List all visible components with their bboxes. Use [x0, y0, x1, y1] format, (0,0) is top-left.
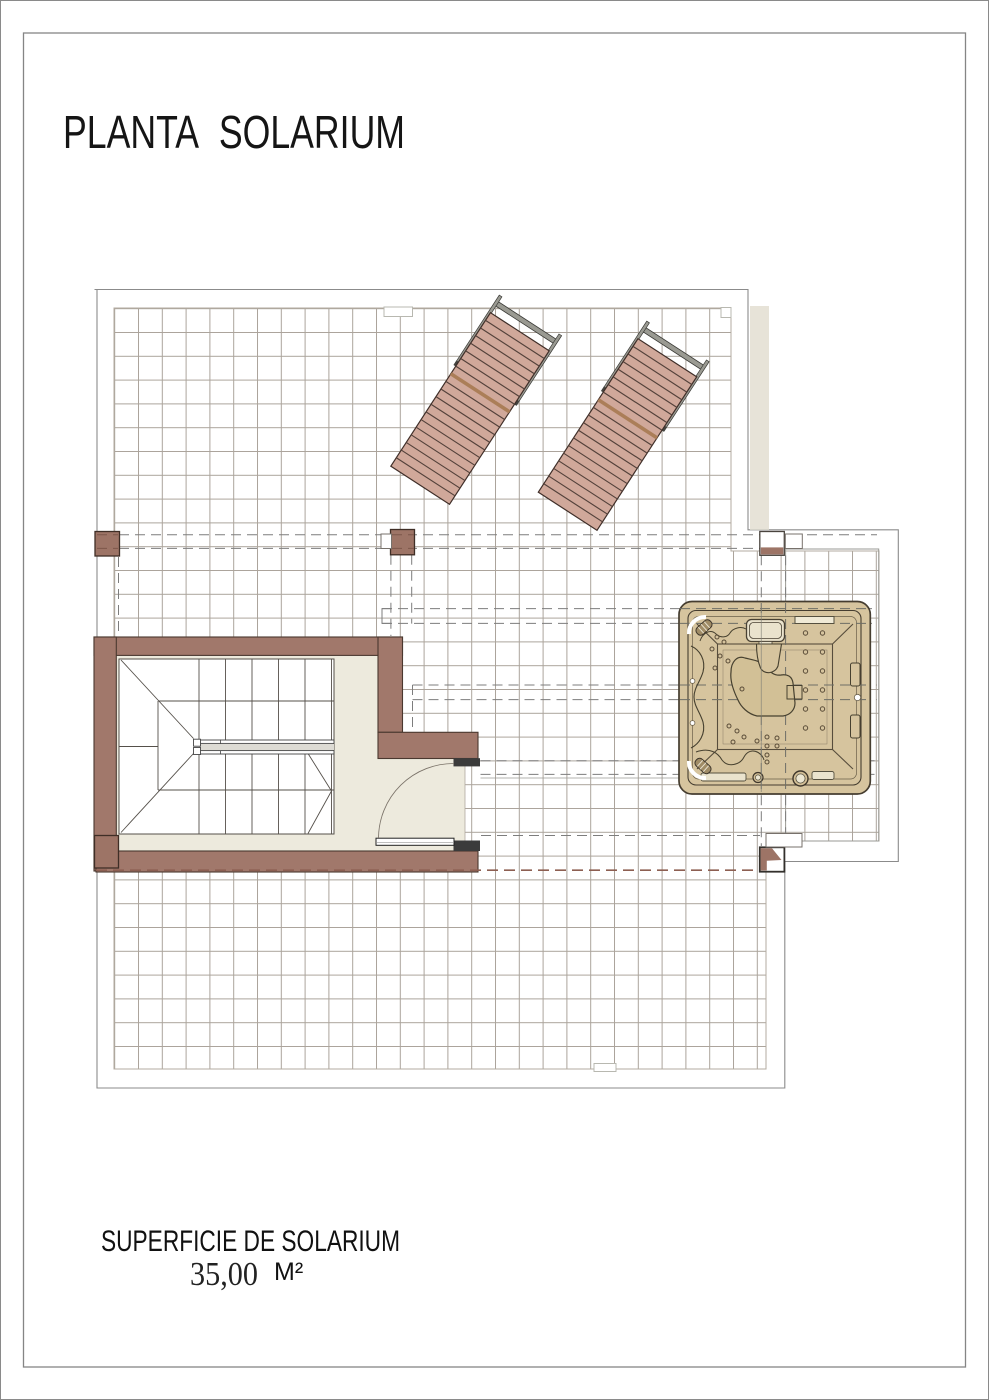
svg-text:SUPERFICIE DE SOLARIUM: SUPERFICIE DE SOLARIUM: [101, 1225, 400, 1258]
svg-text:M²: M²: [274, 1258, 303, 1286]
svg-text:35,00: 35,00: [190, 1256, 258, 1293]
svg-text:PLANTA SOLARIUM: PLANTA SOLARIUM: [63, 106, 405, 158]
